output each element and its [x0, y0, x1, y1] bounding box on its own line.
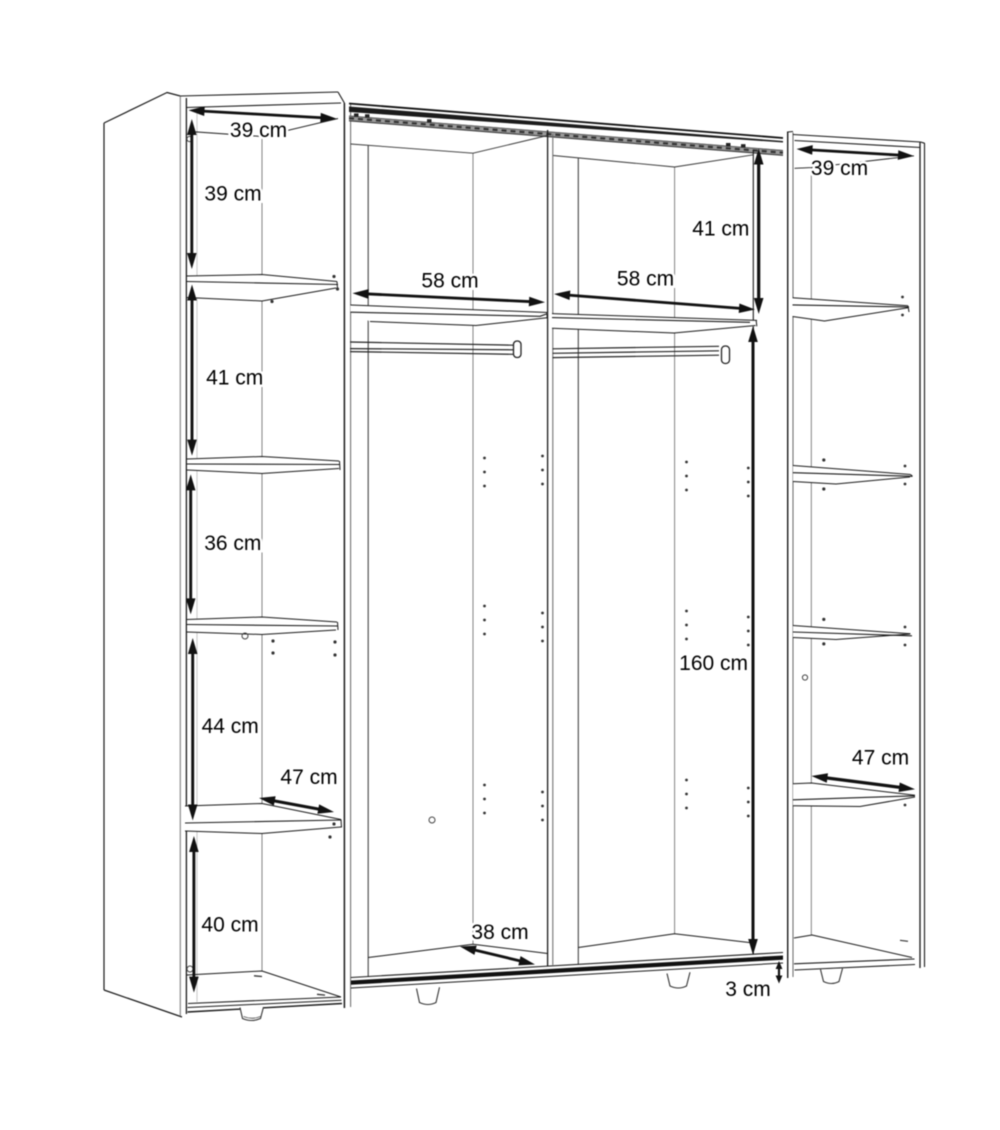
svg-text:39 cm: 39 cm	[204, 183, 261, 206]
svg-text:39 cm: 39 cm	[230, 119, 287, 142]
svg-text:36 cm: 36 cm	[204, 532, 261, 555]
svg-text:41 cm: 41 cm	[692, 218, 749, 241]
svg-text:39 cm: 39 cm	[811, 157, 868, 180]
svg-text:38 cm: 38 cm	[471, 921, 528, 944]
svg-text:41 cm: 41 cm	[206, 367, 263, 390]
svg-text:44 cm: 44 cm	[202, 715, 259, 738]
svg-text:58 cm: 58 cm	[617, 267, 674, 290]
svg-text:3 cm: 3 cm	[725, 978, 771, 1001]
svg-text:47 cm: 47 cm	[280, 766, 337, 789]
svg-text:160 cm: 160 cm	[679, 652, 748, 675]
svg-text:40 cm: 40 cm	[201, 914, 258, 937]
svg-text:47 cm: 47 cm	[852, 747, 909, 770]
svg-text:58 cm: 58 cm	[421, 270, 478, 293]
